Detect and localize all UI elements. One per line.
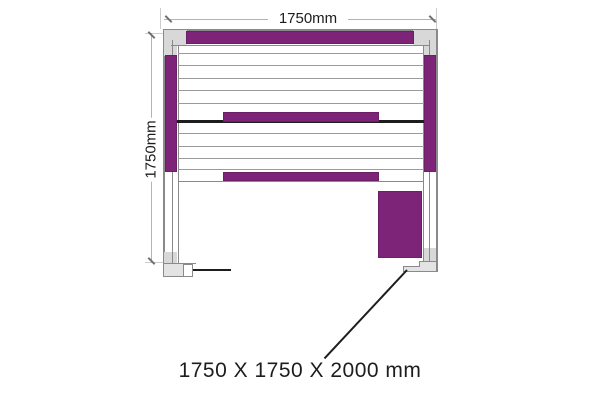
width-extension-right bbox=[436, 8, 437, 29]
width-extension-left bbox=[160, 8, 161, 29]
height-dimension-label: 1750mm bbox=[136, 111, 166, 187]
wall-step-notch bbox=[403, 261, 420, 267]
bench-slat-line bbox=[178, 90, 424, 91]
sauna-floor-plan: 1750mm 1750mm 1750 X 1750 X 2000 mm bbox=[0, 0, 600, 405]
wall-corner-top-left-vertical bbox=[164, 30, 177, 56]
left-heater-panel bbox=[165, 55, 177, 172]
wall-step-bottom-left bbox=[163, 263, 185, 277]
lower-bench-heater-panel bbox=[223, 172, 379, 181]
bench-slat-line bbox=[178, 146, 424, 147]
overall-dimensions-label: 1750 X 1750 X 2000 mm bbox=[140, 359, 460, 383]
upper-bench-heater-panel bbox=[223, 112, 379, 122]
door-frame-cap bbox=[183, 264, 193, 277]
leader-line bbox=[324, 269, 408, 359]
bench-front-edge bbox=[178, 181, 424, 182]
right-heater-panel bbox=[424, 55, 436, 172]
bench-slat-line bbox=[178, 53, 424, 54]
bench-slat-line bbox=[178, 133, 424, 134]
width-dimension-label: 1750mm bbox=[268, 10, 348, 28]
inner-wall-top-edge bbox=[171, 45, 430, 46]
outer-wall-right bbox=[436, 29, 438, 272]
bench-slat-line bbox=[178, 169, 424, 170]
door-edge-line bbox=[193, 269, 231, 271]
bench-slat-line bbox=[178, 158, 424, 159]
bench-slat-line bbox=[178, 78, 424, 79]
bench-slat-line bbox=[178, 65, 424, 66]
bench-slat-line bbox=[178, 103, 424, 104]
top-heater-panel bbox=[186, 31, 414, 44]
floor-heater-panel bbox=[378, 191, 422, 258]
